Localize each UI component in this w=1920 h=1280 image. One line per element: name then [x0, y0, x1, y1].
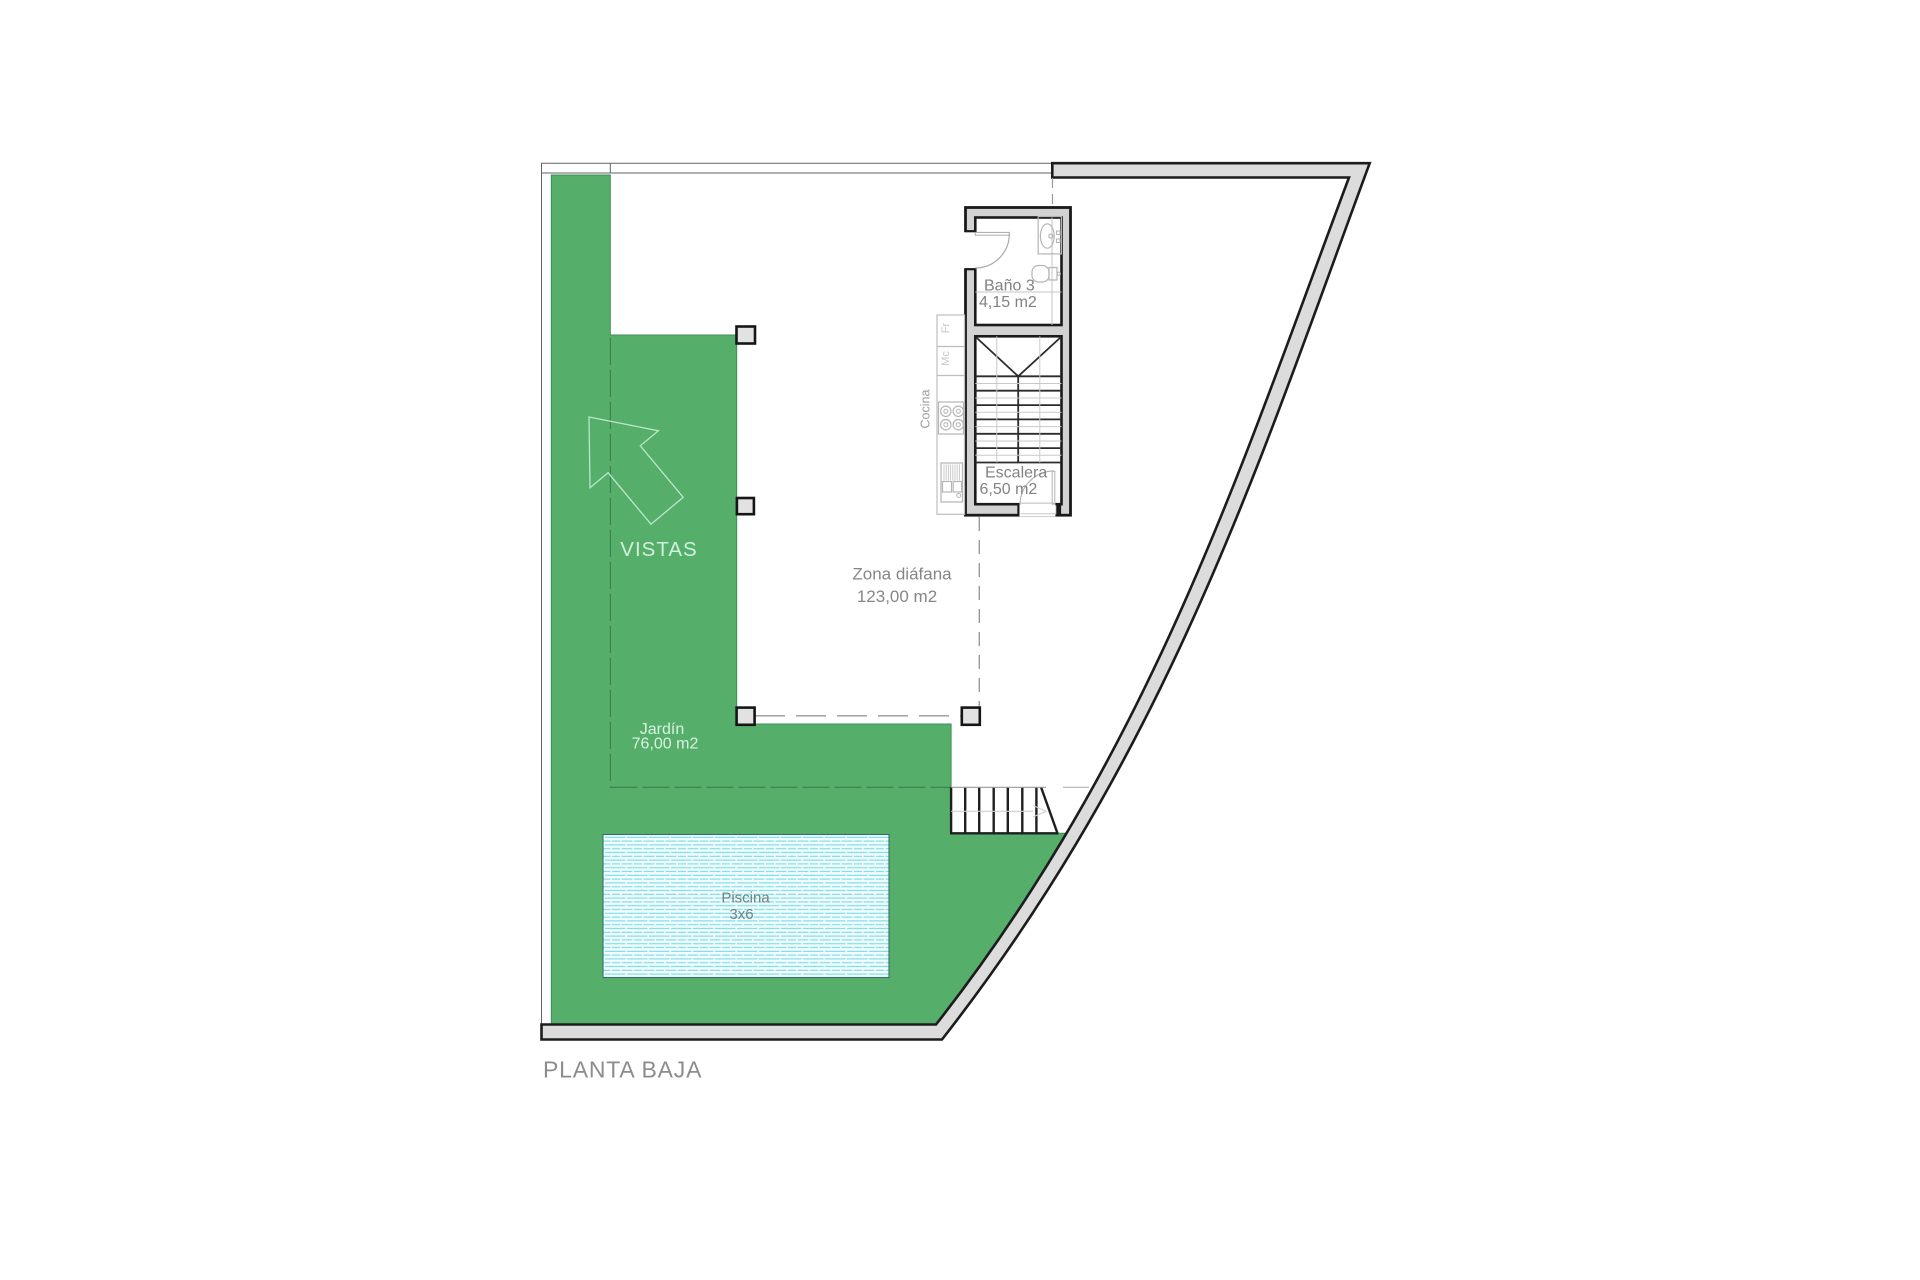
svg-text:VISTAS: VISTAS	[620, 538, 697, 561]
svg-text:Baño 3: Baño 3	[984, 278, 1035, 295]
svg-text:Zona diáfana: Zona diáfana	[852, 565, 952, 584]
svg-text:4,15 m2: 4,15 m2	[979, 294, 1037, 311]
svg-text:Mc: Mc	[940, 351, 952, 366]
svg-text:Cocina: Cocina	[919, 390, 933, 429]
svg-text:Escalera: Escalera	[985, 465, 1047, 482]
svg-text:Piscina: Piscina	[721, 890, 770, 907]
svg-text:Fr: Fr	[940, 322, 952, 333]
svg-text:PLANTA BAJA: PLANTA BAJA	[543, 1057, 702, 1083]
svg-text:3x6: 3x6	[729, 906, 753, 923]
svg-text:76,00 m2: 76,00 m2	[632, 736, 699, 753]
svg-text:123,00 m2: 123,00 m2	[857, 587, 937, 606]
svg-text:6,50 m2: 6,50 m2	[980, 481, 1038, 498]
